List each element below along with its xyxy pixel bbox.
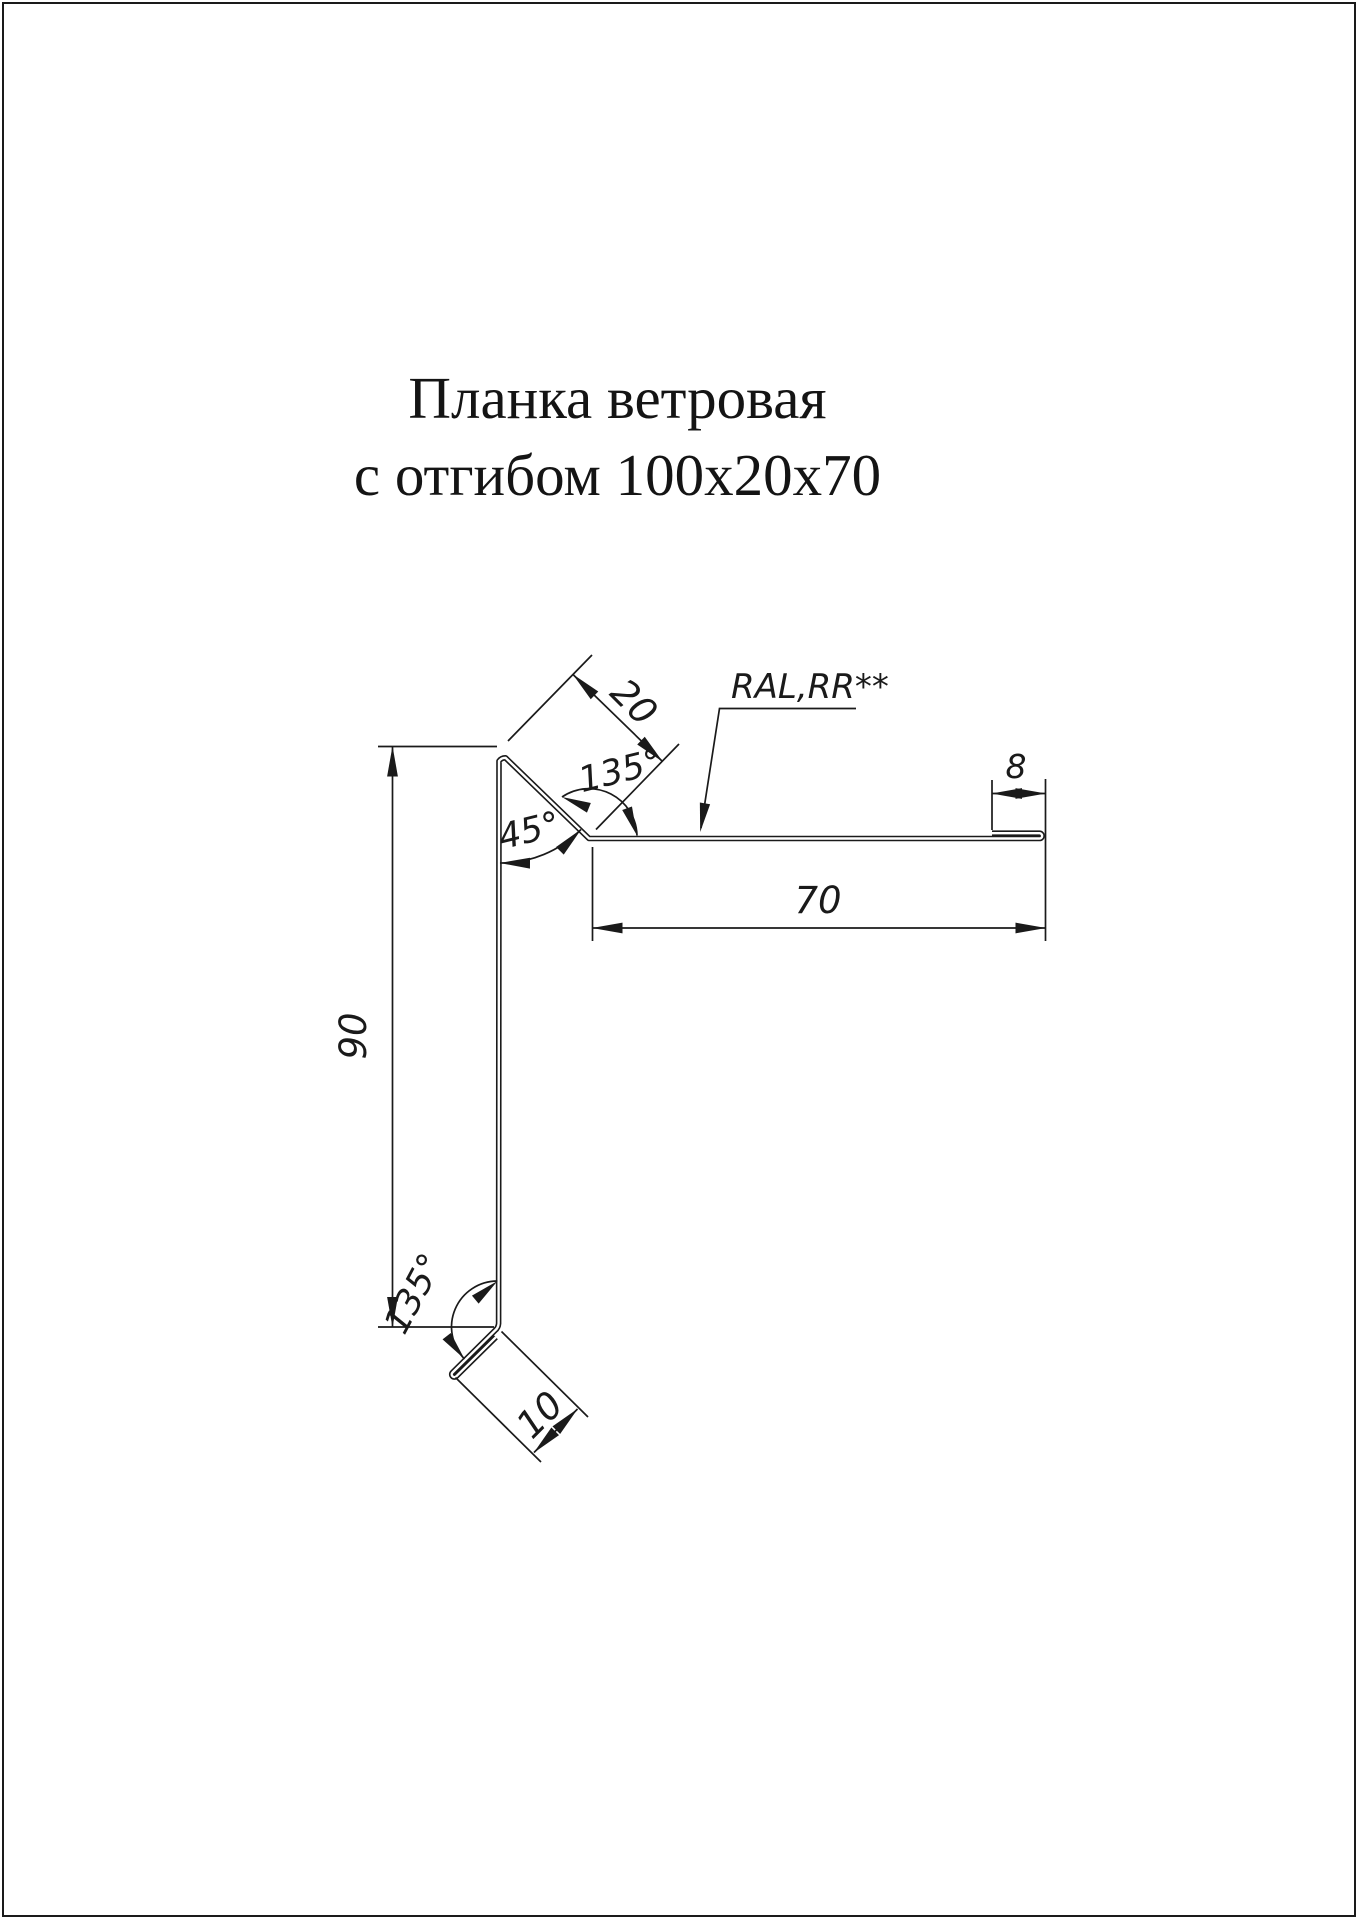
drawing-page: Планка ветровая с отгибом 100х20х70 bbox=[0, 0, 1359, 1920]
arrowhead bbox=[622, 806, 642, 837]
profile-sheet-inner bbox=[452, 758, 1042, 1377]
angle-135-top-label: 135° bbox=[575, 742, 666, 801]
dimension-90 bbox=[378, 747, 497, 1328]
dim-70-label: 70 bbox=[794, 879, 841, 922]
ext-line bbox=[508, 655, 592, 741]
profile-sheet-outer bbox=[452, 758, 1042, 1377]
dim-8-label: 8 bbox=[1006, 747, 1027, 786]
coating-note-label: RAL,RR** bbox=[731, 667, 889, 707]
leader-line bbox=[701, 709, 856, 829]
dim-20-label: 20 bbox=[602, 670, 666, 734]
dim-90-label: 90 bbox=[332, 1012, 375, 1059]
arrowhead bbox=[695, 803, 710, 833]
coating-leader bbox=[695, 709, 856, 833]
angle-135-bottom-arc bbox=[443, 1277, 501, 1362]
technical-drawing: 90 70 8 20 10 45° 135° 135° RAL,RR** bbox=[0, 0, 1359, 1920]
dimension-8 bbox=[992, 780, 1046, 830]
profile-outline bbox=[452, 758, 1042, 1377]
